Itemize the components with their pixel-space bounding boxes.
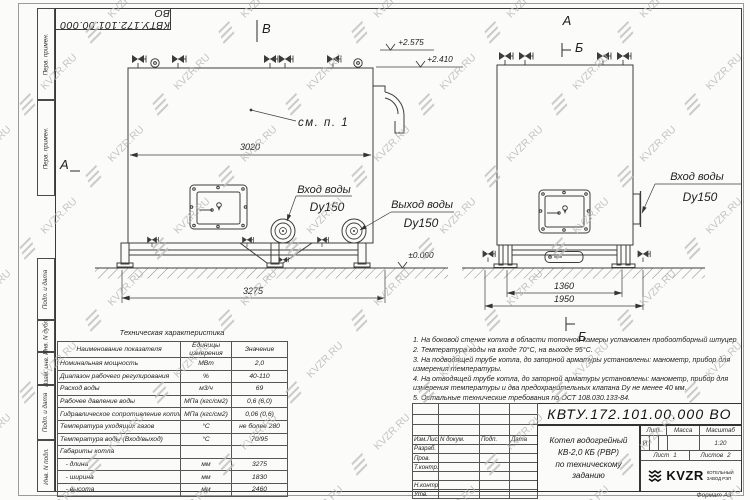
spec-row: - ширинамм1830 (58, 471, 288, 484)
note-item: 4. На отводящей трубе котла, до запорной… (413, 375, 744, 394)
margin-box-podp-data-1: Подп. и дата (37, 258, 55, 320)
spec-cell: Рабочее давление воды (58, 395, 181, 408)
lit-header: Лит. (641, 426, 667, 435)
sign-razrab: Разраб. (413, 444, 439, 453)
sign-row: Н.контр. (413, 481, 538, 490)
sign-utv: Утв. (413, 490, 439, 499)
margin-label: Подп. и дата (43, 269, 50, 308)
spec-table: Наименование показателя Единицы измерени… (57, 341, 288, 497)
spec-cell: Габариты котла (58, 446, 181, 459)
rev-header-row: Изм.Лист N докум. Подп. Дата (413, 435, 538, 444)
spec-cell: °С (181, 433, 232, 446)
spec-row: Гидравлическое сопротивление котлаМПа (к… (58, 408, 288, 421)
spec-row: Температура уходящих газов°Сне более 280 (58, 420, 288, 433)
doc-name-line1: Котел водогрейный (550, 435, 628, 447)
spec-cell (181, 446, 232, 459)
rev-blank-row (413, 414, 538, 425)
spec-row: - длинамм3275 (58, 458, 288, 471)
spec-cell: мм (181, 458, 232, 471)
spec-cell: Номинальная мощность (58, 358, 181, 371)
sheets-cell: Листов 2 (690, 451, 741, 460)
margin-box-vzam-inv: Взам. инв. N (37, 352, 55, 385)
rev-header-izm: Изм.Лист (413, 435, 439, 444)
spec-cell: 2460 (232, 483, 288, 496)
spec-header-row: Наименование показателя Единицы измерени… (58, 342, 288, 358)
spec-cell: - высота (58, 483, 181, 496)
spec-cell: МВт (181, 358, 232, 371)
mass-value (668, 436, 700, 450)
sheet-cell: Лист 1 (641, 451, 690, 460)
rev-header-data: Дата (510, 435, 538, 444)
kvzr-logo: KVZR КОТЕЛЬНЫЙ ЗАВОД РЭП (641, 461, 741, 490)
lit-value: И (641, 436, 650, 450)
margin-label: Инв. N дубл. (43, 318, 50, 354)
sign-row: Разраб. (413, 444, 538, 453)
spec-cell: % (181, 370, 232, 383)
margin-label: Перв. примен. (43, 127, 50, 169)
technical-notes: 1. На боковой стенке котла в области топ… (413, 336, 744, 404)
rev-blank-row (413, 425, 538, 436)
spec-cell: Температура уходящих газов (58, 420, 181, 433)
format-note: Формат А3 (686, 492, 742, 499)
sign-nkontr: Н.контр. (413, 481, 439, 490)
spec-cell: МПа (кгс/см2) (181, 395, 232, 408)
spec-cell: 0,6 (6,0) (232, 395, 288, 408)
spec-row: Диапазон рабочего регулирования%40-110 (58, 370, 288, 383)
mass-header: Масса (667, 426, 699, 435)
lit-mass-scale-values: И 1:20 (641, 436, 741, 451)
spec-row: - высотамм2460 (58, 483, 288, 496)
spec-header-value: Значение (232, 342, 288, 358)
rev-blank-row (413, 404, 538, 415)
spec-cell: МПа (кгс/см2) (181, 408, 232, 421)
doc-name-line3: по техническому заданию (538, 459, 639, 483)
titleblock-designation: КВТУ.172.101.00.000 ВО (537, 403, 742, 425)
doc-name-line2: КВ-2,0 КБ (РВР) (558, 447, 619, 459)
spec-table-title: Техническая характеристика (57, 328, 287, 337)
spec-row: Рабочее давление водыМПа (кгс/см2)0,6 (6… (58, 395, 288, 408)
spec-row: Габариты котла (58, 446, 288, 459)
margin-box-podp-data-2: Подп. и дата (37, 385, 55, 440)
sign-row: Т.контр. (413, 463, 538, 472)
rev-header-podp: Подп. (480, 435, 510, 444)
spec-row: Номинальная мощностьМВт2,0 (58, 358, 288, 371)
sheet-label: Лист (653, 452, 669, 459)
sign-row: Утв. (413, 490, 538, 499)
spec-cell: 0,06 (0,6) (232, 408, 288, 421)
spec-cell: 70/95 (232, 433, 288, 446)
spec-cell: °С (181, 420, 232, 433)
lit-cell-2 (650, 436, 659, 450)
spec-header-units: Единицы измерения (181, 342, 232, 358)
rev-header-dokum: N докум. (439, 435, 480, 444)
spec-cell: Гидравлическое сопротивление котла (58, 408, 181, 421)
sheets-value: 2 (727, 452, 730, 459)
spec-cell: 3275 (232, 458, 288, 471)
sign-row: Пров. (413, 453, 538, 462)
spec-header-name: Наименование показателя (58, 342, 181, 358)
margin-label: Инв. N подл. (43, 448, 50, 485)
sign-row (413, 472, 538, 481)
format-label: Формат (697, 492, 722, 499)
spec-cell (232, 446, 288, 459)
sign-prov: Пров. (413, 453, 439, 462)
spec-row: Расход водым3/ч69 (58, 383, 288, 396)
drawing-sheet: В А см. п. 1 3020 3275 +2.575 +2.410 ±0.… (0, 0, 750, 500)
sheets-label: Листов (701, 452, 724, 459)
scale-value: 1:20 (700, 436, 741, 450)
sign-tkontr: Т.контр. (413, 463, 439, 472)
margin-box-perv-primen-2: Перв. примен. (37, 100, 55, 196)
spec-cell: м3/ч (181, 383, 232, 396)
spec-cell: мм (181, 483, 232, 496)
spec-cell: 40-110 (232, 370, 288, 383)
sign-blank (413, 472, 439, 481)
spec-cell: мм (181, 471, 232, 484)
kvzr-logo-icon (648, 469, 663, 482)
margin-label: Подп. и дата (43, 393, 50, 432)
note-item: 5. Остальные технические требования по О… (413, 394, 744, 403)
top-designation-stamp: КВТУ.172.101.00.000 ВО (55, 8, 171, 30)
spec-cell: 1830 (232, 471, 288, 484)
logo-subtitle: КОТЕЛЬНЫЙ ЗАВОД РЭП (707, 470, 734, 480)
margin-label: Взам. инв. N (43, 350, 50, 387)
margin-box-perv-primen-1: Перв. примен. (37, 8, 55, 100)
logo-text: KVZR (666, 468, 703, 483)
spec-row: Температура воды (Вход/выход)°С70/95 (58, 433, 288, 446)
logo-sub-line2: ЗАВОД РЭП (707, 476, 732, 481)
format-value: А3 (724, 492, 732, 499)
spec-cell: 69 (232, 383, 288, 396)
note-item: 2. Температура воды на входе 70°С, на вы… (413, 346, 744, 355)
titleblock-right: Лит. Масса Масштаб И 1:20 Лист 1 Листов … (640, 425, 742, 492)
spec-cell: 2,0 (232, 358, 288, 371)
spec-cell: Диапазон рабочего регулирования (58, 370, 181, 383)
titleblock-revision-grid: Изм.Лист N докум. Подп. Дата Разраб. Про… (412, 403, 538, 499)
spec-cell: Температура воды (Вход/выход) (58, 433, 181, 446)
spec-cell: Расход воды (58, 383, 181, 396)
margin-label: Перв. примен. (43, 33, 50, 75)
margin-box-inv-dubl: Инв. N дубл. (37, 320, 55, 352)
margin-box-inv-podl: Инв. N подл. (37, 440, 55, 492)
sheet-value: 1 (673, 452, 676, 459)
lit-mass-scale-headers: Лит. Масса Масштаб (641, 426, 741, 436)
titleblock-doc-name: Котел водогрейный КВ-2,0 КБ (РВР) по тех… (537, 425, 640, 492)
note-item: 1. На боковой стенке котла в области топ… (413, 336, 744, 345)
note-item: 3. На подводящей трубе котла, до запорно… (413, 356, 744, 375)
scale-header: Масштаб (700, 426, 741, 435)
lit-cell-3 (659, 436, 668, 450)
spec-cell: не более 280 (232, 420, 288, 433)
spec-cell: - ширина (58, 471, 181, 484)
spec-cell: - длина (58, 458, 181, 471)
sheet-row: Лист 1 Листов 2 (641, 451, 741, 461)
top-designation-text: КВТУ.172.101.00.000 ВО (55, 7, 170, 31)
